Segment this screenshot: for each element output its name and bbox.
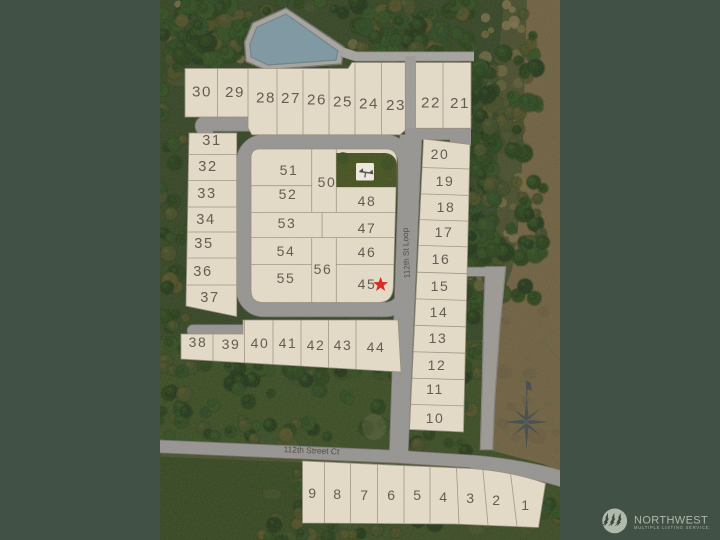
svg-text:MULTIPLE LISTING SERVICE.: MULTIPLE LISTING SERVICE.	[634, 525, 711, 530]
